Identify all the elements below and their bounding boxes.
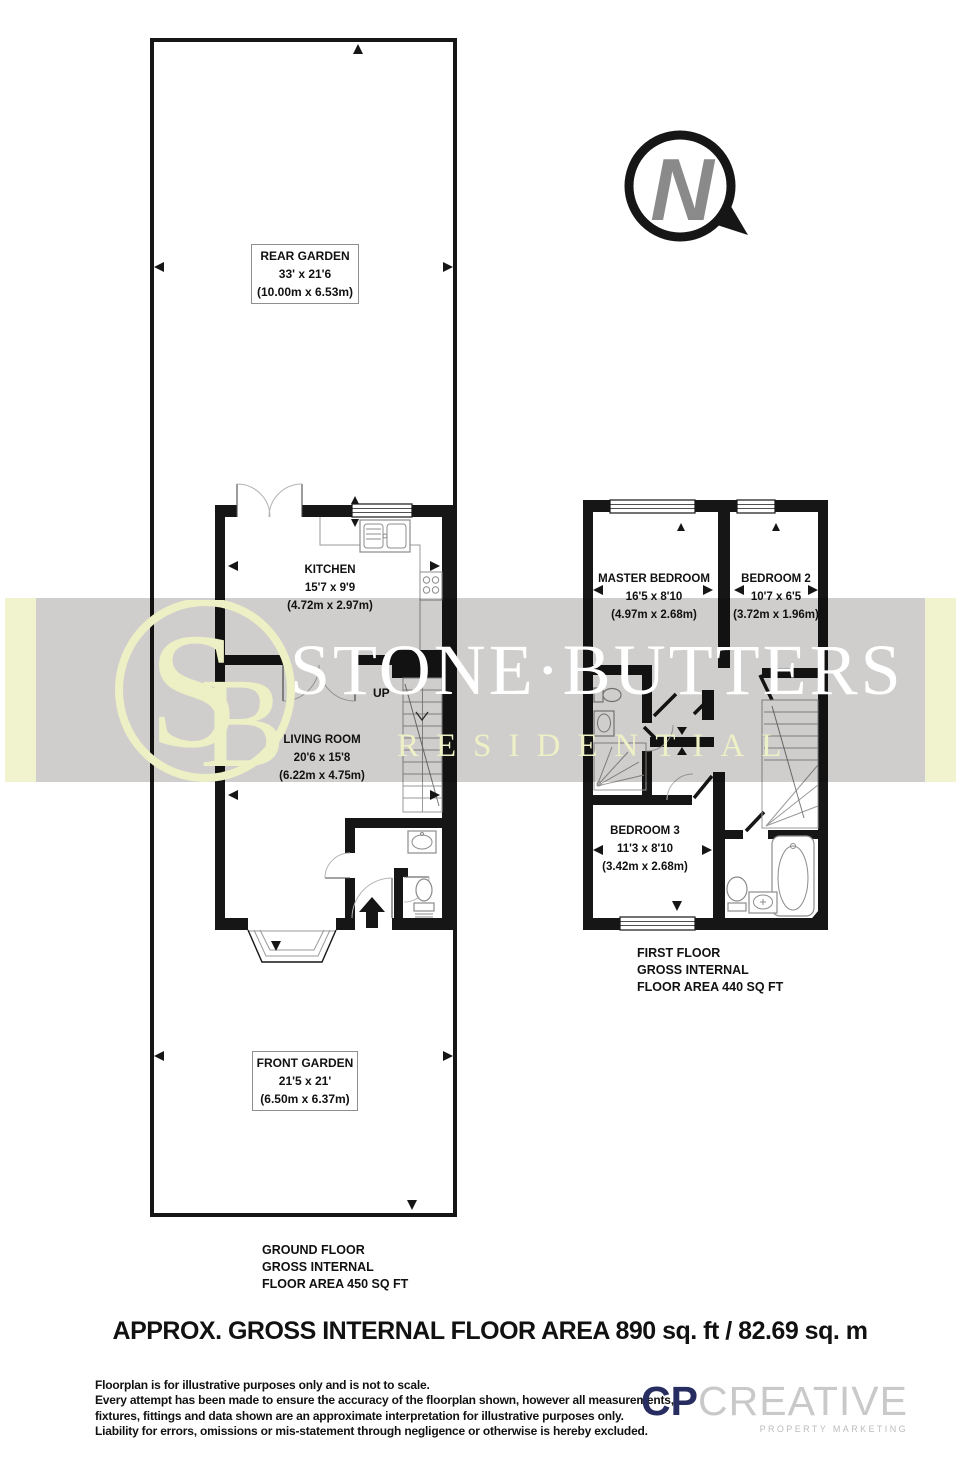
kitchen-label: KITCHEN 15'7 x 9'9 (4.72m x 2.97m) — [270, 561, 390, 615]
kitchen-window — [352, 504, 412, 517]
first-floor-caption: FIRST FLOOR GROSS INTERNAL FLOOR AREA 44… — [637, 945, 783, 996]
hob — [420, 572, 442, 600]
living-room-label: LIVING ROOM 20'6 x 15'8 (6.22m x 4.75m) — [262, 731, 382, 785]
bedroom3-label: BEDROOM 3 11'3 x 8'10 (3.42m x 2.68m) — [586, 822, 704, 876]
area-summary-title: APPROX. GROSS INTERNAL FLOOR AREA 890 sq… — [0, 1317, 980, 1346]
kitchen-living-doors — [283, 665, 355, 701]
bedroom2-label: BEDROOM 2 10'7 x 6'5 (3.72m x 1.96m) — [730, 570, 822, 624]
bath — [772, 836, 814, 916]
shower-room-toilet — [594, 688, 621, 702]
disclaimer-text: Floorplan is for illustrative purposes o… — [95, 1378, 674, 1440]
ground-floor-caption: GROUND FLOOR GROSS INTERNAL FLOOR AREA 4… — [262, 1242, 408, 1293]
shower-room-basin — [594, 711, 614, 736]
logo-prefix: CP — [641, 1381, 698, 1422]
garden-boundary — [152, 40, 455, 1215]
bathroom-basin — [749, 892, 777, 913]
landing-doors — [644, 675, 772, 831]
kitchen-sink — [360, 520, 410, 552]
north-letter: N — [640, 140, 724, 240]
up-label: UP — [373, 686, 390, 700]
master-bedroom-label: MASTER BEDROOM 16'5 x 8'10 (4.97m x 2.68… — [595, 570, 713, 624]
bay-window — [248, 930, 336, 962]
bedroom3-window — [620, 917, 695, 930]
first-floor-stairs — [762, 700, 818, 828]
front-garden-label: FRONT GARDEN 21'5 x 21' (6.50m x 6.37m) — [252, 1051, 358, 1111]
wc-basin — [408, 831, 436, 853]
hall-door-arc — [325, 853, 350, 878]
entrance-arrow-icon — [359, 897, 385, 928]
bedroom2-window — [737, 500, 775, 513]
french-doors — [237, 484, 302, 517]
cp-creative-logo: CPCREATIVE PROPERTY MARKETING — [641, 1381, 908, 1434]
master-bedroom-window — [610, 500, 695, 513]
shower — [594, 743, 646, 790]
logo-suffix: CREATIVE — [698, 1381, 908, 1422]
ground-stairs — [403, 678, 442, 812]
logo-tagline: PROPERTY MARKETING — [641, 1424, 908, 1434]
rear-garden-label: REAR GARDEN 33' x 21'6 (10.00m x 6.53m) — [251, 244, 359, 304]
bathroom-toilet — [727, 877, 747, 911]
floorplan-drawing — [0, 0, 980, 1470]
floorplan-page: N S B STONE·BUTTERS RESIDENTIAL REAR GAR… — [0, 0, 980, 1470]
